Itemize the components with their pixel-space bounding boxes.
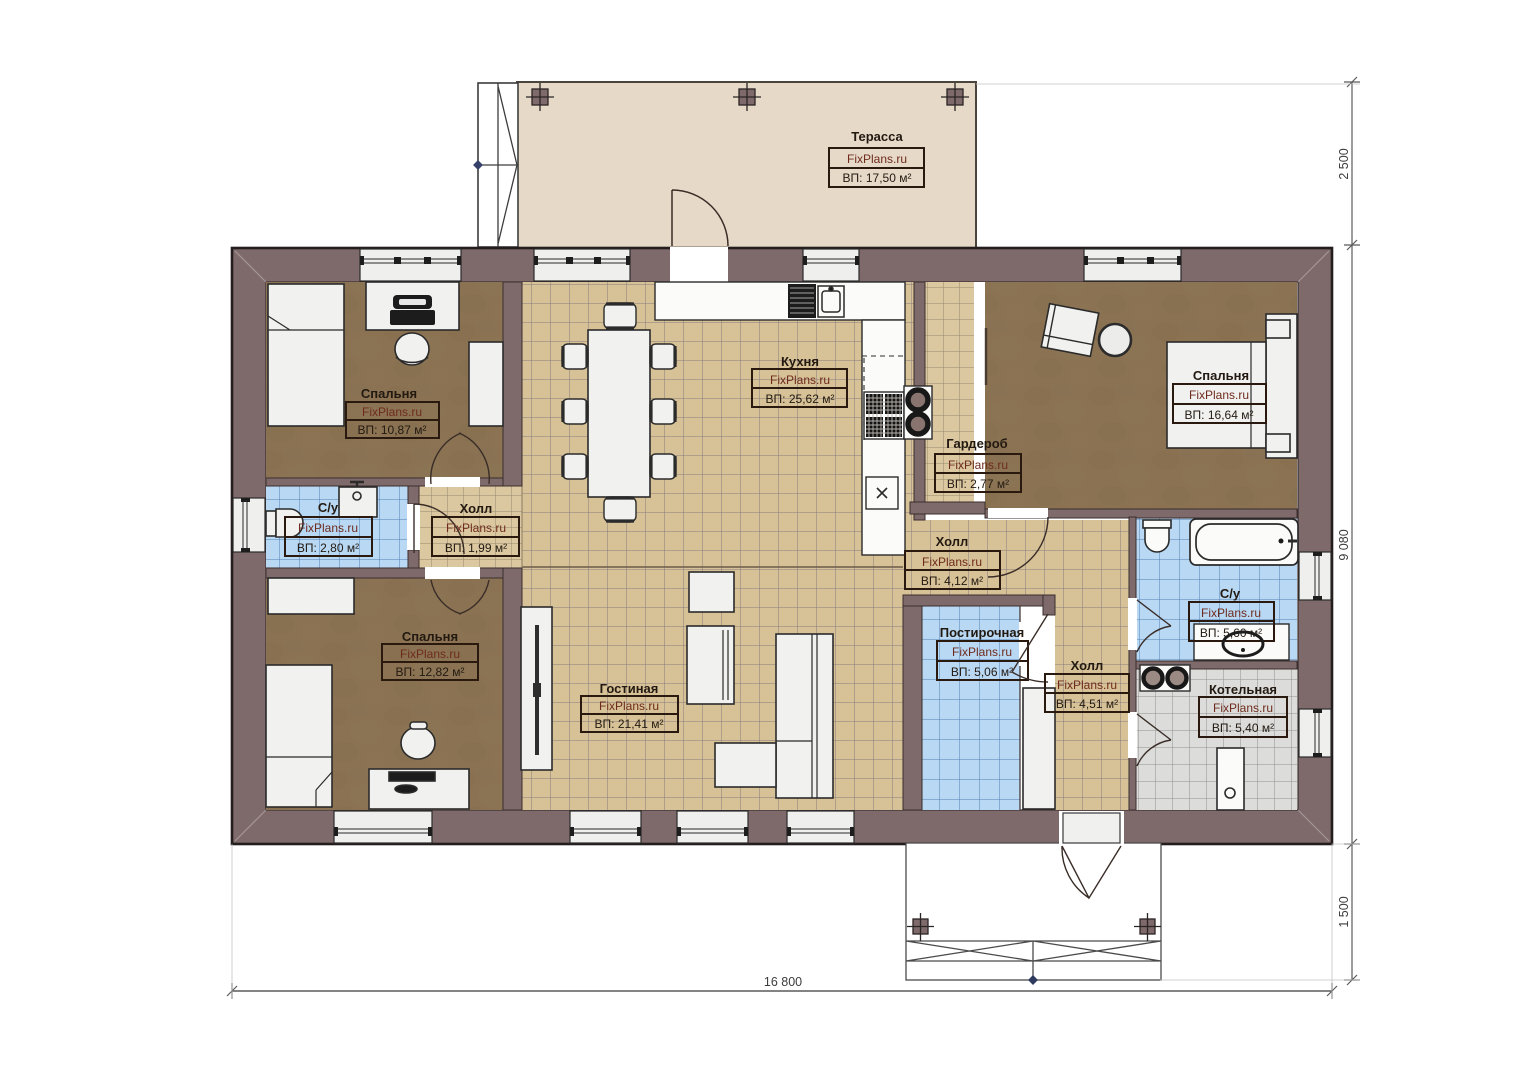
svg-text:FixPlans.ru: FixPlans.ru	[1201, 606, 1261, 620]
svg-text:FixPlans.ru: FixPlans.ru	[599, 699, 659, 713]
svg-text:Спальня: Спальня	[361, 386, 417, 401]
svg-text:1 500: 1 500	[1337, 896, 1351, 927]
svg-text:ВП: 2,80 м²: ВП: 2,80 м²	[297, 541, 359, 555]
svg-text:9 080: 9 080	[1337, 529, 1351, 560]
svg-text:FixPlans.ru: FixPlans.ru	[770, 373, 830, 387]
svg-text:FixPlans.ru: FixPlans.ru	[952, 645, 1012, 659]
svg-text:FixPlans.ru: FixPlans.ru	[362, 405, 422, 419]
svg-text:ВП: 4,12 м²: ВП: 4,12 м²	[921, 574, 983, 588]
svg-text:Холл: Холл	[1071, 658, 1104, 673]
svg-text:ВП: 12,82 м²: ВП: 12,82 м²	[396, 665, 465, 679]
svg-text:Котельная: Котельная	[1209, 682, 1277, 697]
svg-text:ВП: 1,99 м²: ВП: 1,99 м²	[445, 541, 507, 555]
svg-text:Терасса: Терасса	[851, 129, 903, 144]
svg-text:FixPlans.ru: FixPlans.ru	[446, 521, 506, 535]
svg-text:ВП: 2,77 м²: ВП: 2,77 м²	[947, 477, 1009, 491]
svg-text:С/у: С/у	[1220, 586, 1241, 601]
svg-text:16 800: 16 800	[764, 975, 802, 989]
svg-text:ВП: 17,50 м²: ВП: 17,50 м²	[843, 171, 912, 185]
svg-text:FixPlans.ru: FixPlans.ru	[1057, 678, 1117, 692]
svg-text:FixPlans.ru: FixPlans.ru	[298, 521, 358, 535]
svg-text:С/у: С/у	[318, 500, 339, 515]
svg-text:FixPlans.ru: FixPlans.ru	[400, 647, 460, 661]
svg-text:Постирочная: Постирочная	[940, 625, 1024, 640]
svg-text:Спальня: Спальня	[1193, 368, 1249, 383]
svg-text:ВП: 4,51 м²: ВП: 4,51 м²	[1056, 697, 1118, 711]
svg-text:FixPlans.ru: FixPlans.ru	[847, 152, 907, 166]
svg-text:FixPlans.ru: FixPlans.ru	[1189, 388, 1249, 402]
svg-text:FixPlans.ru: FixPlans.ru	[1213, 701, 1273, 715]
svg-text:2 500: 2 500	[1337, 148, 1351, 179]
svg-text:ВП: 5,40 м²: ВП: 5,40 м²	[1212, 721, 1274, 735]
svg-text:Гостиная: Гостиная	[600, 681, 659, 696]
svg-text:ВП: 21,41 м²: ВП: 21,41 м²	[595, 717, 664, 731]
svg-text:Спальня: Спальня	[402, 629, 458, 644]
svg-text:Холл: Холл	[460, 501, 493, 516]
svg-text:ВП: 16,64 м²: ВП: 16,64 м²	[1185, 408, 1254, 422]
svg-text:FixPlans.ru: FixPlans.ru	[948, 458, 1008, 472]
svg-text:FixPlans.ru: FixPlans.ru	[922, 555, 982, 569]
svg-text:Гардероб: Гардероб	[946, 436, 1007, 451]
svg-text:Кухня: Кухня	[781, 354, 819, 369]
svg-text:ВП: 5,06 м²: ВП: 5,06 м²	[951, 665, 1013, 679]
svg-text:ВП: 25,62 м²: ВП: 25,62 м²	[766, 392, 835, 406]
svg-text:Холл: Холл	[936, 534, 969, 549]
svg-text:ВП: 10,87 м²: ВП: 10,87 м²	[358, 423, 427, 437]
